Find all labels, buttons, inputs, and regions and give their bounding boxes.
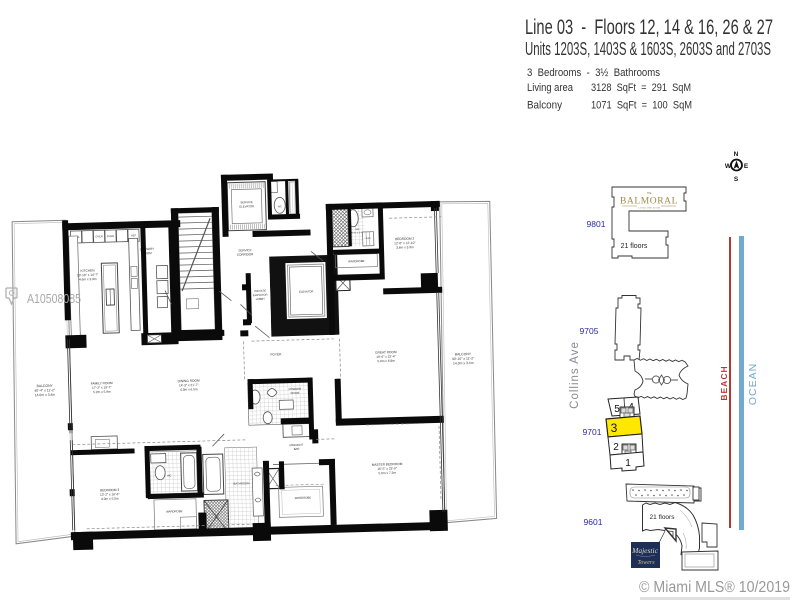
svg-text:9601: 9601 — [584, 517, 603, 527]
svg-text:WC: WC — [278, 205, 282, 208]
svg-text:5.9m x 6.8m: 5.9m x 6.8m — [377, 359, 395, 363]
svg-text:3 Bedrooms - 3½ Bathrooms: 3 Bedrooms - 3½ Bathrooms — [527, 67, 660, 79]
svg-text:WARDROBE: WARDROBE — [348, 259, 365, 263]
svg-text:9705: 9705 — [580, 326, 599, 336]
svg-text:4.0m x 5.0m: 4.0m x 5.0m — [101, 496, 119, 500]
svg-text:5.2m x 5.9m: 5.2m x 5.9m — [93, 390, 111, 394]
svg-text:CORRIDOR: CORRIDOR — [237, 252, 254, 256]
svg-text:Units 1203S, 1403S & 1603S, 26: Units 1203S, 1403S & 1603S, 2603S and 27… — [525, 39, 771, 59]
svg-text:14.0m x 3.4m: 14.0m x 3.4m — [453, 361, 474, 366]
svg-text:2: 2 — [613, 442, 619, 453]
svg-text:9701: 9701 — [583, 427, 602, 437]
svg-text:Majestic: Majestic — [631, 546, 658, 555]
svg-text:LINEN: LINEN — [365, 238, 371, 240]
svg-text:Towers: Towers — [637, 560, 655, 566]
svg-text:Living area: Living area — [527, 82, 574, 94]
svg-text:OVEN: OVEN — [95, 234, 103, 238]
svg-text:E: E — [744, 163, 749, 170]
svg-text:© Miami MLS® 10/2019: © Miami MLS® 10/2019 — [639, 579, 790, 596]
svg-text:21 floors: 21 floors — [621, 243, 648, 250]
svg-text:1071 SqFt = 100 SqM: 1071 SqFt = 100 SqM — [591, 100, 692, 112]
svg-text:14.0m x 3.4m: 14.0m x 3.4m — [35, 393, 56, 398]
svg-text:BEACH: BEACH — [719, 365, 729, 400]
svg-text:BAR: BAR — [294, 447, 300, 451]
svg-text:5: 5 — [614, 404, 620, 415]
svg-text:ELEVATOR: ELEVATOR — [239, 204, 254, 208]
svg-text:4.6m x 3.9m: 4.6m x 3.9m — [79, 277, 97, 281]
svg-text:FOYER: FOYER — [270, 352, 282, 356]
svg-text:Line 03 - Floors 12, 14 & 16: Line 03 - Floors 12, 14 & 16, 26 & 27 — [525, 15, 773, 39]
svg-text:3128 SqFt = 291 SqM: 3128 SqFt = 291 SqM — [591, 82, 691, 94]
svg-text:A10508085: A10508085 — [27, 292, 81, 306]
svg-text:OCEAN: OCEAN — [747, 363, 759, 405]
svg-text:THE: THE — [647, 192, 652, 195]
svg-text:5.0m x 7.2m: 5.0m x 7.2m — [378, 471, 396, 475]
svg-text:N: N — [734, 151, 739, 158]
svg-text:OVEN: OVEN — [107, 234, 115, 238]
svg-text:REF: REF — [131, 233, 137, 237]
svg-text:WARDROBE: WARDROBE — [166, 509, 183, 513]
svg-text:BALMORAL: BALMORAL — [620, 197, 678, 207]
svg-text:WC: WC — [167, 473, 172, 477]
svg-text:ROOM: ROOM — [291, 391, 300, 395]
svg-text:1: 1 — [625, 458, 631, 469]
svg-text:BATHROOM: BATHROOM — [233, 481, 250, 485]
svg-text:S: S — [734, 176, 739, 183]
svg-text:WARDROBE: WARDROBE — [295, 496, 312, 500]
svg-text:LOBBY: LOBBY — [256, 297, 266, 301]
svg-text:3: 3 — [611, 421, 618, 435]
svg-text:9801: 9801 — [587, 219, 606, 229]
svg-text:3.6m x 3.9m: 3.6m x 3.9m — [396, 245, 414, 249]
svg-text:C O N D O M I N I U M: C O N D O M I N I U M — [638, 208, 660, 210]
svg-text:4.3m x 6.5m: 4.3m x 6.5m — [180, 387, 198, 391]
svg-text:Collins Ave: Collins Ave — [569, 341, 581, 409]
svg-text:9'-0" x 5'-0": 9'-0" x 5'-0" — [351, 231, 363, 234]
svg-text:ELEVATOR: ELEVATOR — [299, 289, 314, 293]
svg-text:Balcony: Balcony — [527, 100, 562, 112]
svg-text:21 floors: 21 floors — [650, 514, 676, 521]
